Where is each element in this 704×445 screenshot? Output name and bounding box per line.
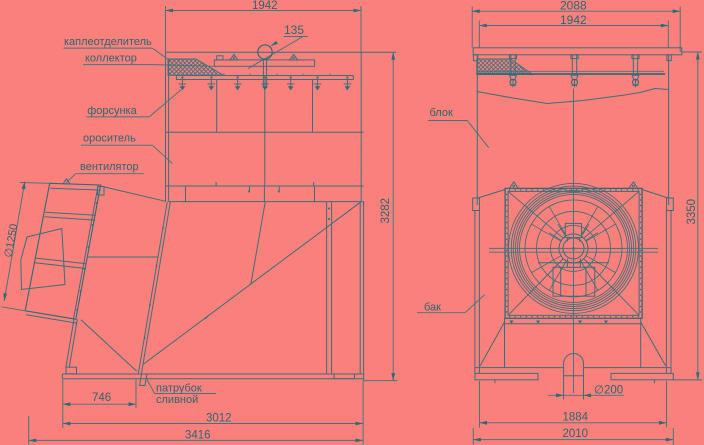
- svg-text:3416: 3416: [185, 429, 211, 441]
- svg-text:форсунка: форсунка: [87, 105, 137, 117]
- svg-text:вентилятор: вентилятор: [80, 161, 139, 173]
- svg-text:1942: 1942: [560, 13, 587, 27]
- svg-text:135: 135: [284, 23, 304, 37]
- svg-text:блок: блок: [430, 107, 453, 119]
- svg-text:ороситель: ороситель: [83, 133, 136, 145]
- svg-text:2088: 2088: [560, 0, 587, 13]
- svg-text:каплеотделитель: каплеотделитель: [64, 36, 152, 48]
- svg-text:1884: 1884: [563, 412, 589, 424]
- svg-text:3350: 3350: [686, 199, 698, 225]
- svg-text:бак: бак: [424, 302, 441, 314]
- svg-text:3282: 3282: [380, 198, 392, 224]
- svg-text:1942: 1942: [252, 0, 278, 12]
- svg-text:2010: 2010: [563, 428, 589, 440]
- svg-text:3012: 3012: [206, 413, 232, 425]
- svg-text:коллектор: коллектор: [85, 53, 137, 65]
- svg-text:746: 746: [92, 392, 111, 404]
- svg-text:патрубок: патрубок: [156, 383, 202, 395]
- svg-text:сливной: сливной: [156, 394, 198, 406]
- svg-text:∅200: ∅200: [594, 385, 623, 397]
